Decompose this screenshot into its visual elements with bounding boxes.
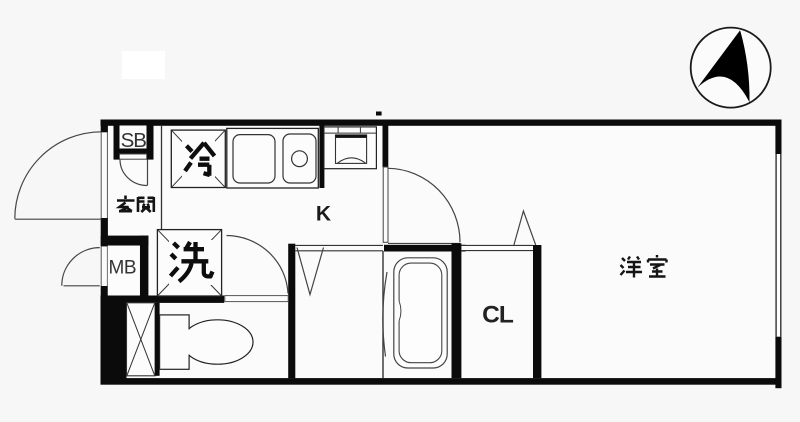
svg-text:K: K: [316, 203, 331, 226]
svg-text:SB: SB: [121, 129, 147, 152]
svg-text:CL: CL: [482, 302, 514, 329]
svg-text:MB: MB: [109, 258, 137, 279]
